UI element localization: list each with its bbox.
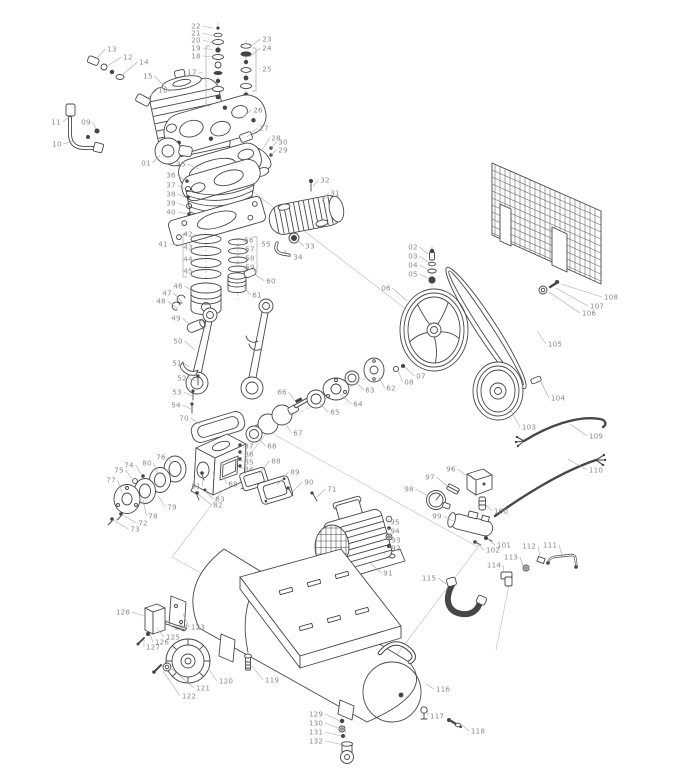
caster-wheel [341, 742, 354, 764]
part-label-36: 36 [166, 171, 176, 180]
aftercooler-bolt [309, 179, 313, 191]
part-label-35: 35 [176, 160, 186, 169]
leader-line-97 [437, 477, 449, 487]
leader-line-12 [107, 57, 122, 66]
aftercooler [267, 193, 346, 237]
leader-line-116 [426, 684, 434, 689]
part-label-52: 52 [177, 374, 187, 383]
part-label-19: 19 [191, 44, 201, 53]
part-label-78: 78 [148, 512, 158, 521]
part-label-12: 12 [123, 53, 133, 62]
leader-line-132 [325, 741, 344, 745]
leader-line-53 [184, 392, 193, 396]
leader-line-33 [296, 239, 304, 246]
tank-bolt [245, 654, 252, 670]
part-label-11: 11 [51, 118, 61, 127]
leader-line-113 [520, 557, 523, 566]
leader-line-05 [420, 274, 430, 279]
part-label-38: 38 [166, 190, 176, 199]
part-label-88: 88 [271, 457, 281, 466]
bearing-shells [246, 336, 261, 350]
part-label-102: 102 [486, 546, 500, 555]
motor-pulley [473, 362, 523, 420]
part-label-63: 63 [365, 386, 375, 395]
part-label-62: 62 [386, 384, 396, 393]
part-label-37: 37 [166, 181, 176, 190]
wheel [166, 639, 210, 683]
part-label-06: 06 [381, 284, 391, 293]
part-label-48: 48 [156, 297, 166, 306]
part-label-92: 92 [391, 544, 401, 553]
part-label-31: 31 [330, 189, 340, 198]
part-label-117: 117 [430, 712, 444, 721]
part-label-107: 107 [590, 302, 604, 311]
compression-nut [523, 565, 529, 571]
leader-line-71 [317, 489, 326, 497]
axle-hardware [152, 663, 171, 674]
part-label-45: 45 [183, 267, 193, 276]
leader-line-54 [183, 405, 192, 409]
part-label-122: 122 [182, 692, 196, 701]
pin-clips [172, 295, 185, 310]
leader-line-49 [183, 318, 190, 324]
part-label-40: 40 [166, 208, 176, 217]
unloader-tube [66, 104, 104, 153]
part-label-127: 127 [146, 643, 160, 652]
flywheel [400, 289, 468, 371]
bearing-flange [323, 378, 349, 400]
bearing-front [307, 390, 325, 408]
leader-line-98 [416, 489, 429, 496]
drain-valve [421, 707, 427, 719]
part-label-39: 39 [166, 199, 176, 208]
part-label-58: 58 [245, 254, 255, 263]
part-label-86: 86 [244, 450, 254, 459]
part-label-114: 114 [487, 561, 502, 570]
leader-line-131 [325, 732, 341, 736]
part-label-23: 23 [262, 35, 272, 44]
part-label-46: 46 [173, 282, 183, 291]
piston-small [228, 273, 246, 293]
part-label-121: 121 [196, 684, 210, 693]
junction-box [145, 604, 165, 634]
leader-line-90 [292, 482, 303, 492]
leader-line-17 [199, 72, 204, 73]
part-label-105: 105 [548, 340, 562, 349]
part-label-94: 94 [390, 527, 400, 536]
part-label-32: 32 [320, 176, 330, 185]
part-label-120: 120 [219, 677, 234, 686]
leader-line-28 [263, 138, 270, 149]
outlet-fitting [289, 233, 299, 243]
hub-bolts [393, 364, 405, 372]
connecting-rod-2 [241, 299, 273, 399]
leader-line-70 [191, 418, 201, 424]
part-label-67: 67 [293, 429, 303, 438]
part-label-124: 124 [174, 623, 189, 632]
part-label-89: 89 [290, 468, 300, 477]
part-label-17: 17 [187, 68, 197, 77]
part-label-71: 71 [327, 485, 337, 494]
leader-line-112 [538, 546, 540, 557]
part-label-119: 119 [265, 676, 280, 685]
part-label-07: 07 [416, 372, 426, 381]
part-label-09: 09 [81, 118, 91, 127]
leader-line-120 [208, 668, 217, 681]
unloading-pipe [546, 555, 578, 569]
part-label-85: 85 [244, 458, 254, 467]
part-label-115: 115 [422, 574, 436, 583]
part-label-90: 90 [304, 478, 314, 487]
guard-washer [539, 286, 547, 294]
part-label-68: 68 [267, 442, 277, 451]
part-label-59: 59 [245, 263, 255, 272]
leader-line-29 [271, 150, 277, 155]
leader-line-79 [158, 496, 166, 507]
leader-line-118 [461, 724, 469, 731]
leader-line-21 [203, 33, 214, 36]
part-label-24: 24 [262, 44, 272, 53]
part-label-61: 61 [252, 291, 262, 300]
leader-line-109 [570, 424, 587, 436]
part-label-54: 54 [171, 401, 181, 410]
leader-line-75 [126, 470, 134, 480]
leader-line-115 [438, 578, 446, 584]
part-label-69: 69 [228, 480, 238, 489]
part-label-103: 103 [522, 423, 536, 432]
part-label-64: 64 [353, 400, 363, 409]
leader-line-111 [559, 545, 562, 555]
part-label-01: 01 [141, 159, 151, 168]
pressure-gauge [427, 491, 451, 510]
part-label-15: 15 [143, 72, 153, 81]
part-label-26: 26 [253, 106, 263, 115]
part-label-13: 13 [107, 45, 117, 54]
part-label-87: 87 [244, 442, 254, 451]
part-label-118: 118 [471, 727, 486, 736]
part-label-123: 123 [191, 623, 205, 632]
part-label-70: 70 [179, 414, 189, 423]
leader-line-74 [136, 465, 142, 474]
hub-flange [364, 358, 384, 382]
part-label-43: 43 [183, 243, 193, 252]
leader-line-02 [420, 247, 429, 254]
leader-line-14 [122, 62, 138, 75]
leader-line-24 [249, 48, 261, 57]
part-label-29: 29 [278, 146, 288, 155]
part-label-74: 74 [124, 461, 134, 470]
manifold [446, 506, 495, 537]
part-label-131: 131 [309, 728, 323, 737]
part-label-27: 27 [259, 124, 269, 133]
part-label-02: 02 [408, 243, 418, 252]
switch-fitting [446, 484, 459, 495]
flex-hose [446, 577, 487, 614]
part-label-129: 129 [309, 710, 324, 719]
pressure-switch [467, 469, 492, 495]
leader-line-03 [420, 256, 430, 263]
part-label-16: 16 [158, 86, 168, 95]
pipe-nut [537, 556, 545, 563]
leader-line-63 [355, 381, 364, 390]
leader-line-72 [123, 515, 137, 523]
tank-fitting [447, 718, 461, 727]
part-label-41: 41 [158, 240, 168, 249]
part-label-05: 05 [408, 270, 418, 279]
part-label-128: 128 [116, 608, 131, 617]
part-label-56: 56 [244, 236, 254, 245]
leader-line-23 [250, 39, 261, 47]
part-label-76: 76 [156, 453, 166, 462]
leader-line-30 [271, 142, 277, 148]
part-label-111: 111 [543, 541, 557, 550]
part-label-77: 77 [106, 476, 116, 485]
leader-line-73 [113, 520, 129, 529]
elbow-fitting [501, 572, 512, 586]
nipple [479, 497, 486, 510]
leader-line-101 [488, 539, 495, 545]
part-label-91: 91 [383, 569, 393, 578]
leader-line-32 [313, 180, 319, 186]
leader-line-20 [203, 40, 214, 43]
part-label-57: 57 [245, 245, 255, 254]
leader-line-126 [150, 634, 153, 642]
line-art [66, 26, 606, 763]
part-label-04: 04 [408, 261, 418, 270]
leader-line-96 [458, 469, 468, 476]
manifold-fittings [473, 536, 492, 545]
leader-line-62 [379, 377, 385, 388]
part-label-130: 130 [309, 719, 324, 728]
part-label-30: 30 [278, 138, 288, 147]
part-label-65: 65 [330, 408, 340, 417]
part-label-66: 66 [277, 388, 287, 397]
leader-line-07 [405, 367, 415, 376]
part-label-75: 75 [114, 466, 124, 475]
part-label-34: 34 [293, 253, 303, 262]
part-label-110: 110 [589, 466, 604, 475]
part-label-113: 113 [504, 553, 518, 562]
leader-line-19 [203, 48, 214, 50]
part-label-95: 95 [390, 518, 400, 527]
part-label-14: 14 [139, 58, 149, 67]
part-label-42: 42 [183, 230, 193, 239]
leader-line-100 [486, 505, 492, 511]
leader-line-66 [289, 392, 296, 401]
part-label-10: 10 [52, 140, 62, 149]
part-label-08: 08 [404, 378, 414, 387]
leader-line-09 [93, 122, 97, 129]
part-label-93: 93 [391, 536, 401, 545]
leader-line-06 [393, 288, 408, 301]
part-label-80: 80 [142, 459, 152, 468]
part-label-79: 79 [167, 503, 177, 512]
leader-line-128 [132, 612, 144, 616]
leader-line-106 [549, 292, 580, 313]
leader-line-22 [203, 26, 214, 28]
leader-line-129 [325, 714, 340, 721]
part-label-98: 98 [404, 485, 414, 494]
part-label-33: 33 [305, 242, 315, 251]
leader-line-60 [256, 275, 265, 281]
part-label-96: 96 [446, 465, 456, 474]
leader-line-13 [96, 49, 106, 59]
belt-guard-grille [492, 150, 601, 300]
part-label-116: 116 [436, 685, 451, 694]
leader-line-105 [537, 331, 546, 344]
leader-line-130 [325, 723, 341, 729]
part-label-97: 97 [425, 473, 435, 482]
part-label-18: 18 [191, 52, 201, 61]
leader-line-08 [398, 370, 403, 382]
part-label-44: 44 [183, 255, 193, 264]
parts-diagram-page: 0102030405060708091011121314151617181920… [0, 0, 686, 768]
flywheel-bolt-set [428, 249, 436, 284]
leader-line-107 [556, 288, 588, 306]
compressor-exploded-diagram: 0102030405060708091011121314151617181920… [0, 0, 686, 768]
leader-line-67 [285, 423, 292, 433]
part-label-132: 132 [309, 737, 323, 746]
part-label-25: 25 [262, 65, 272, 74]
part-label-83: 83 [215, 495, 225, 504]
motor-cable [495, 454, 606, 516]
part-label-60: 60 [266, 277, 276, 286]
leader-line-04 [420, 265, 430, 270]
leader-line-82 [198, 494, 212, 505]
leader-line-108 [561, 284, 602, 297]
part-label-99: 99 [432, 512, 442, 521]
pulley-key [530, 376, 541, 384]
part-label-112: 112 [522, 542, 536, 551]
part-label-100: 100 [494, 507, 509, 516]
part-label-109: 109 [589, 432, 604, 441]
part-label-53: 53 [172, 388, 182, 397]
part-label-55: 55 [261, 240, 271, 249]
part-label-51: 51 [172, 359, 182, 368]
part-label-03: 03 [408, 252, 418, 261]
leader-line-119 [252, 666, 263, 680]
part-label-104: 104 [551, 394, 566, 403]
leader-line-18 [203, 56, 214, 57]
part-label-49: 49 [171, 314, 181, 323]
part-label-22: 22 [191, 22, 201, 31]
leader-line-104 [541, 382, 549, 398]
leader-line-40 [178, 212, 189, 214]
part-label-81: 81 [191, 482, 201, 491]
part-label-108: 108 [604, 293, 619, 302]
leader-line-50 [185, 341, 196, 350]
part-label-73: 73 [130, 525, 140, 534]
part-label-50: 50 [173, 337, 183, 346]
